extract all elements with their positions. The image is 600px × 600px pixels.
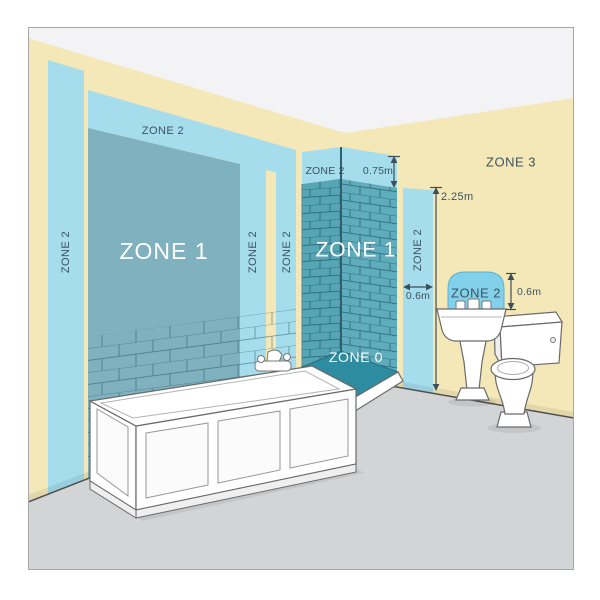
zone3-label: ZONE 3 xyxy=(486,155,536,170)
bathroom-zones-diagram: ZONE 2 ZONE 2 ZONE 1 ZONE 2 ZONE 2 ZONE … xyxy=(0,0,600,600)
zone1-shower-label: ZONE 1 xyxy=(316,239,397,262)
zone2-sink-label: ZONE 2 xyxy=(451,286,501,301)
measure-shower-above: 0.75m xyxy=(363,165,393,177)
sink-pedestal-foot xyxy=(456,388,489,400)
zone0-label: ZONE 0 xyxy=(329,349,383,365)
measure-zone-height: 2.25m xyxy=(441,191,474,203)
sink-basin xyxy=(437,309,506,341)
zone2-strip-a-label: ZONE 2 xyxy=(247,231,259,273)
cistern-button xyxy=(551,338,556,343)
bath-front-panel-1 xyxy=(146,423,208,498)
measure-shower-side-width: 0.6m xyxy=(406,290,430,302)
measure-sink-above: 0.6m xyxy=(517,286,541,298)
zone2-left-label: ZONE 2 xyxy=(60,231,72,273)
zone2-top-label: ZONE 2 xyxy=(142,125,184,137)
shower-tile-wall-left-grout xyxy=(302,179,341,367)
diagram-canvas: ZONE 2 ZONE 2 ZONE 1 ZONE 2 ZONE 2 ZONE … xyxy=(0,0,600,600)
zone1-bath-label: ZONE 1 xyxy=(119,238,208,264)
zone2-left-strip xyxy=(48,60,84,494)
sink-taps xyxy=(456,299,491,310)
shower-tile-wall-right-grout xyxy=(341,179,397,372)
zone2-shower-side-label: ZONE 2 xyxy=(412,229,424,271)
zone2-strip-b-label: ZONE 2 xyxy=(281,231,293,273)
bath-front-panel-2 xyxy=(218,411,280,483)
bath-front-panel-3 xyxy=(290,399,348,468)
zone2-shower-top-label: ZONE 2 xyxy=(305,165,344,177)
